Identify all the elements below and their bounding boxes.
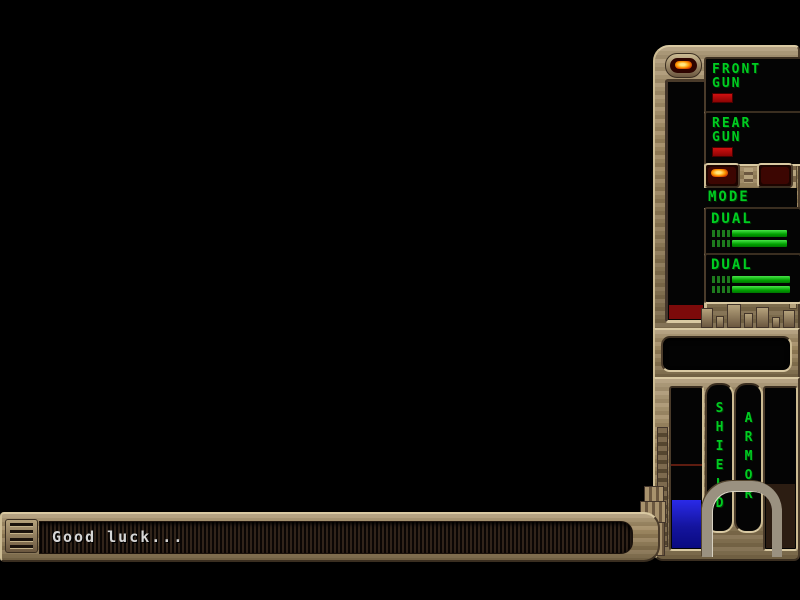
dual-weapon-display-secondary: DUAL	[704, 253, 800, 304]
power-led-glow	[675, 61, 692, 69]
rear-gun-display: REAR GUN	[704, 111, 800, 166]
mode-led-row	[704, 164, 793, 187]
grille-slit	[10, 523, 33, 527]
led-connector	[744, 168, 752, 183]
mode-led-inactive-icon	[757, 163, 793, 188]
dual-primary-label: DUAL	[711, 212, 800, 227]
power-segment	[727, 286, 730, 293]
rear-gun-label-line2: GUN	[712, 131, 800, 145]
power-segment	[722, 240, 725, 247]
greeble	[701, 308, 713, 328]
shield-gauge	[669, 386, 704, 551]
power-segment	[727, 240, 730, 247]
message-screen: Good luck...	[39, 521, 633, 554]
message-text: Good luck...	[52, 522, 184, 553]
speaker-grille-icon	[5, 519, 38, 553]
greeble	[756, 307, 769, 328]
mode-led-active-glow	[711, 169, 728, 177]
greeble	[716, 316, 725, 328]
mode-label: MODE	[704, 188, 797, 208]
grille-slit	[10, 545, 33, 549]
message-bar: Good luck...	[0, 512, 660, 562]
dual-secondary-power-row-1	[712, 276, 800, 283]
data-display-panel	[653, 328, 800, 381]
dual-secondary-power-row-2	[712, 286, 800, 293]
power-bar	[732, 240, 787, 247]
mode-led-active-icon	[704, 163, 740, 188]
data-display-screen	[661, 336, 792, 372]
power-bar	[732, 276, 790, 283]
shield-gauge-fill	[672, 500, 701, 548]
power-led-slot	[670, 58, 697, 73]
grille-slit	[10, 538, 33, 542]
dual-primary-power-row-1	[712, 230, 800, 237]
front-gun-display: FRONT GUN	[704, 57, 800, 114]
mode-led-active-slot	[708, 167, 736, 184]
power-segment	[722, 286, 725, 293]
junction-greeble	[644, 486, 664, 502]
power-segment	[712, 240, 715, 247]
power-segment	[712, 276, 715, 283]
dual-weapon-display-primary: DUAL	[704, 207, 800, 256]
power-segment	[722, 230, 725, 237]
power-segment	[717, 276, 720, 283]
front-gun-label-line1: FRONT	[712, 63, 800, 77]
power-segment	[727, 276, 730, 283]
ship-dock-arch	[702, 481, 782, 557]
mode-led-inactive-slot	[761, 167, 789, 184]
dual-secondary-label: DUAL	[711, 258, 800, 273]
grille-slit	[10, 530, 33, 534]
front-gun-charge-bar	[712, 93, 733, 103]
power-segment	[727, 230, 730, 237]
power-led-icon	[665, 53, 702, 78]
greeble	[727, 304, 740, 328]
power-segment	[722, 276, 725, 283]
weapon-panel: FRONT GUN REAR GUN MODE DUAL	[653, 45, 800, 332]
front-gun-label-line2: GUN	[712, 77, 800, 91]
greeble	[783, 310, 795, 328]
power-bar	[732, 230, 787, 237]
rear-gun-label-line1: REAR	[712, 117, 800, 131]
power-segment	[717, 286, 720, 293]
power-segment	[717, 240, 720, 247]
greeble	[772, 317, 781, 328]
power-bar	[732, 286, 790, 293]
energy-gauge-fill	[669, 305, 703, 319]
shield-gauge-tick	[671, 464, 702, 466]
panel-greebles	[701, 303, 795, 328]
power-segment	[712, 230, 715, 237]
energy-gauge	[665, 79, 707, 323]
greeble	[744, 313, 753, 328]
status-panel: SHIELD ARMOR	[653, 377, 800, 561]
rear-gun-charge-bar	[712, 147, 733, 157]
dual-primary-power-row-2	[712, 240, 800, 247]
power-segment	[717, 230, 720, 237]
power-segment	[712, 286, 715, 293]
